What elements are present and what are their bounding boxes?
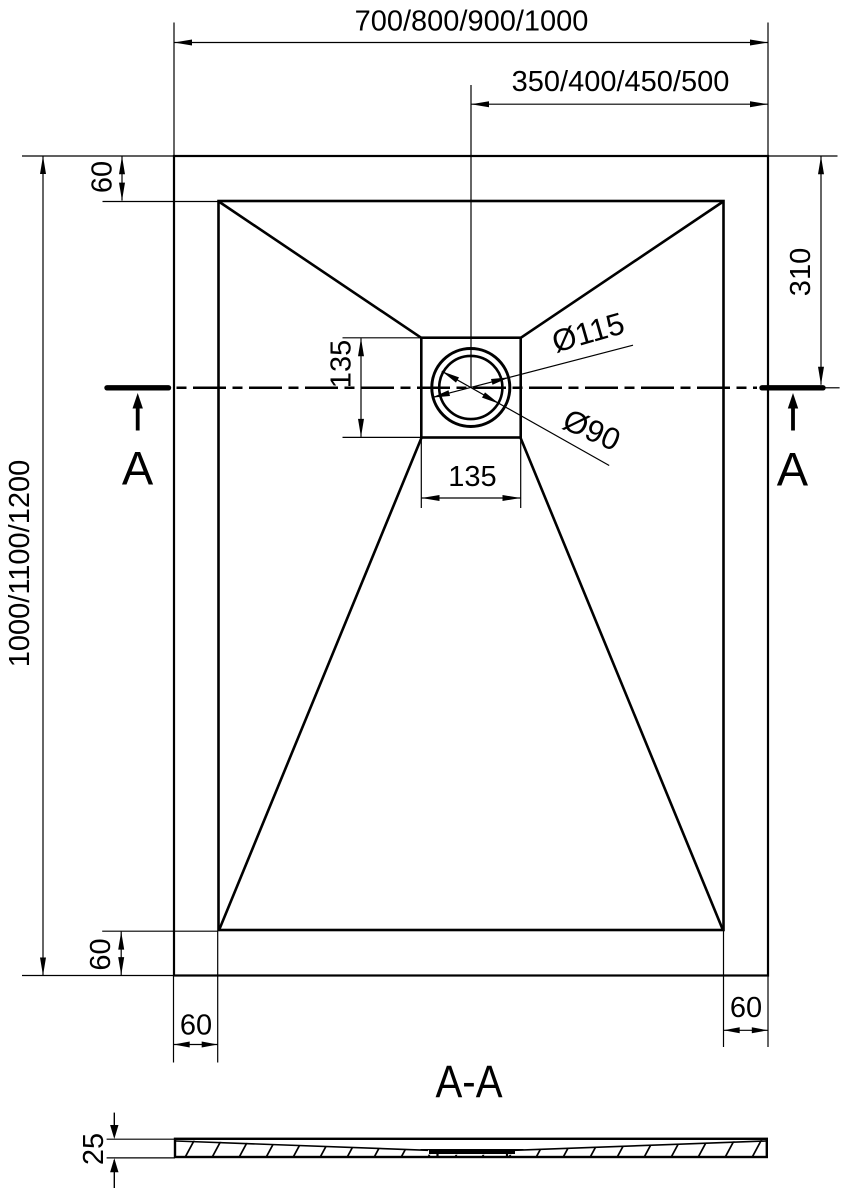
svg-text:60: 60 xyxy=(87,161,119,193)
svg-text:350/400/450/500: 350/400/450/500 xyxy=(512,66,730,98)
svg-text:60: 60 xyxy=(730,992,762,1024)
svg-text:135: 135 xyxy=(448,461,496,493)
svg-text:135: 135 xyxy=(326,340,358,388)
svg-text:1000/1100/1200: 1000/1100/1200 xyxy=(4,460,36,668)
svg-text:A: A xyxy=(122,442,154,495)
svg-text:25: 25 xyxy=(78,1133,110,1165)
svg-text:700/800/900/1000: 700/800/900/1000 xyxy=(355,5,589,37)
svg-text:60: 60 xyxy=(180,1009,212,1041)
svg-text:A-A: A-A xyxy=(436,1056,503,1107)
svg-text:Ø90: Ø90 xyxy=(558,402,626,458)
svg-text:310: 310 xyxy=(785,248,817,296)
svg-text:60: 60 xyxy=(85,938,117,970)
svg-text:Ø115: Ø115 xyxy=(548,306,628,360)
svg-text:A: A xyxy=(777,443,809,496)
